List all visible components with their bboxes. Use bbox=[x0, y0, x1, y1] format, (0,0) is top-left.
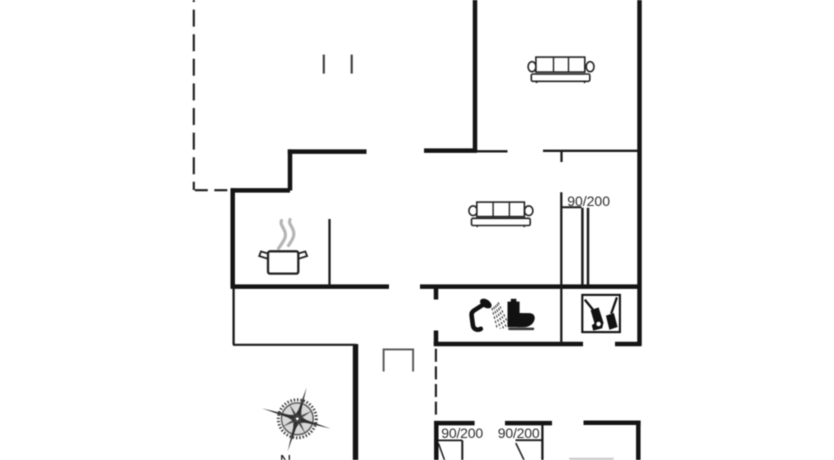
svg-text:N: N bbox=[280, 453, 292, 460]
svg-text:90/200: 90/200 bbox=[567, 193, 610, 209]
svg-text:90/200: 90/200 bbox=[441, 425, 483, 441]
svg-text:90/200: 90/200 bbox=[498, 425, 540, 441]
